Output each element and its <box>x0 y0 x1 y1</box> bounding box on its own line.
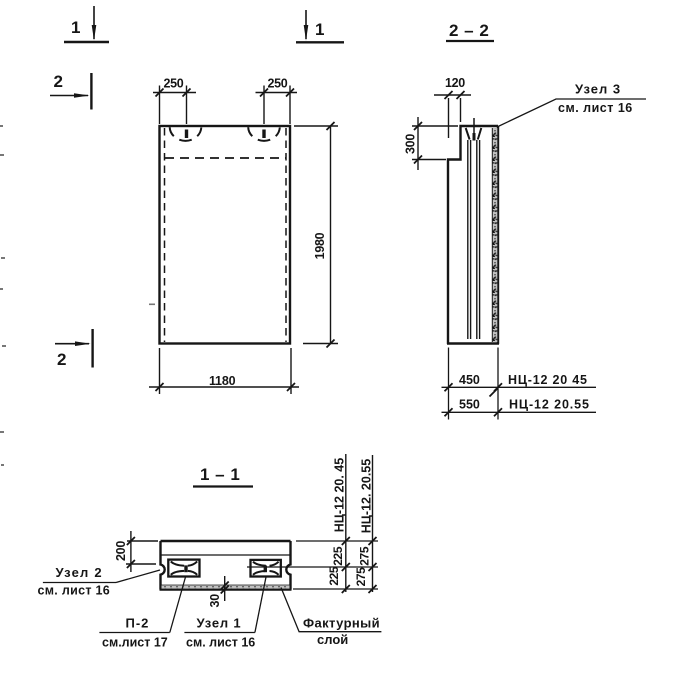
svg-text:НЦ-12 20 45: НЦ-12 20 45 <box>508 373 588 387</box>
svg-text:1980: 1980 <box>313 232 327 259</box>
svg-text:250: 250 <box>268 77 288 91</box>
svg-text:Узел 2: Узел 2 <box>56 565 103 580</box>
svg-text:НЦ-12. 20.55: НЦ-12. 20.55 <box>360 459 374 533</box>
svg-text:2: 2 <box>54 72 63 91</box>
svg-text:1180: 1180 <box>209 374 236 388</box>
svg-text:НЦ-12 20. 45: НЦ-12 20. 45 <box>333 458 347 532</box>
svg-text:см. лист 16: см. лист 16 <box>558 101 633 115</box>
svg-text:1: 1 <box>71 18 80 37</box>
svg-text:П-2: П-2 <box>126 616 150 631</box>
svg-text:2: 2 <box>57 350 66 369</box>
svg-text:Узел 1: Узел 1 <box>197 616 242 631</box>
svg-text:300: 300 <box>404 134 418 154</box>
svg-text:слой: слой <box>317 632 348 647</box>
svg-text:НЦ-12 20.55: НЦ-12 20.55 <box>509 398 590 412</box>
svg-text:см. лист 16: см. лист 16 <box>38 584 111 598</box>
svg-text:Узел 3: Узел 3 <box>575 82 621 97</box>
svg-text:120: 120 <box>445 76 465 90</box>
svg-text:450: 450 <box>459 373 480 387</box>
svg-text:200: 200 <box>114 541 128 561</box>
svg-text:Фактурный: Фактурный <box>303 616 380 631</box>
svg-text:250: 250 <box>164 77 184 91</box>
svg-text:1: 1 <box>315 20 324 39</box>
svg-text:550: 550 <box>459 398 480 412</box>
svg-text:275: 275 <box>358 546 372 566</box>
svg-text:225: 225 <box>331 546 345 566</box>
svg-text:1 – 1: 1 – 1 <box>200 465 240 484</box>
svg-text:225: 225 <box>327 566 341 586</box>
svg-text:см. лист 16: см. лист 16 <box>186 636 255 650</box>
svg-text:см.лист 17: см.лист 17 <box>102 636 168 650</box>
svg-text:2 – 2: 2 – 2 <box>449 21 489 40</box>
svg-text:30: 30 <box>208 594 222 608</box>
svg-text:275: 275 <box>354 567 368 587</box>
